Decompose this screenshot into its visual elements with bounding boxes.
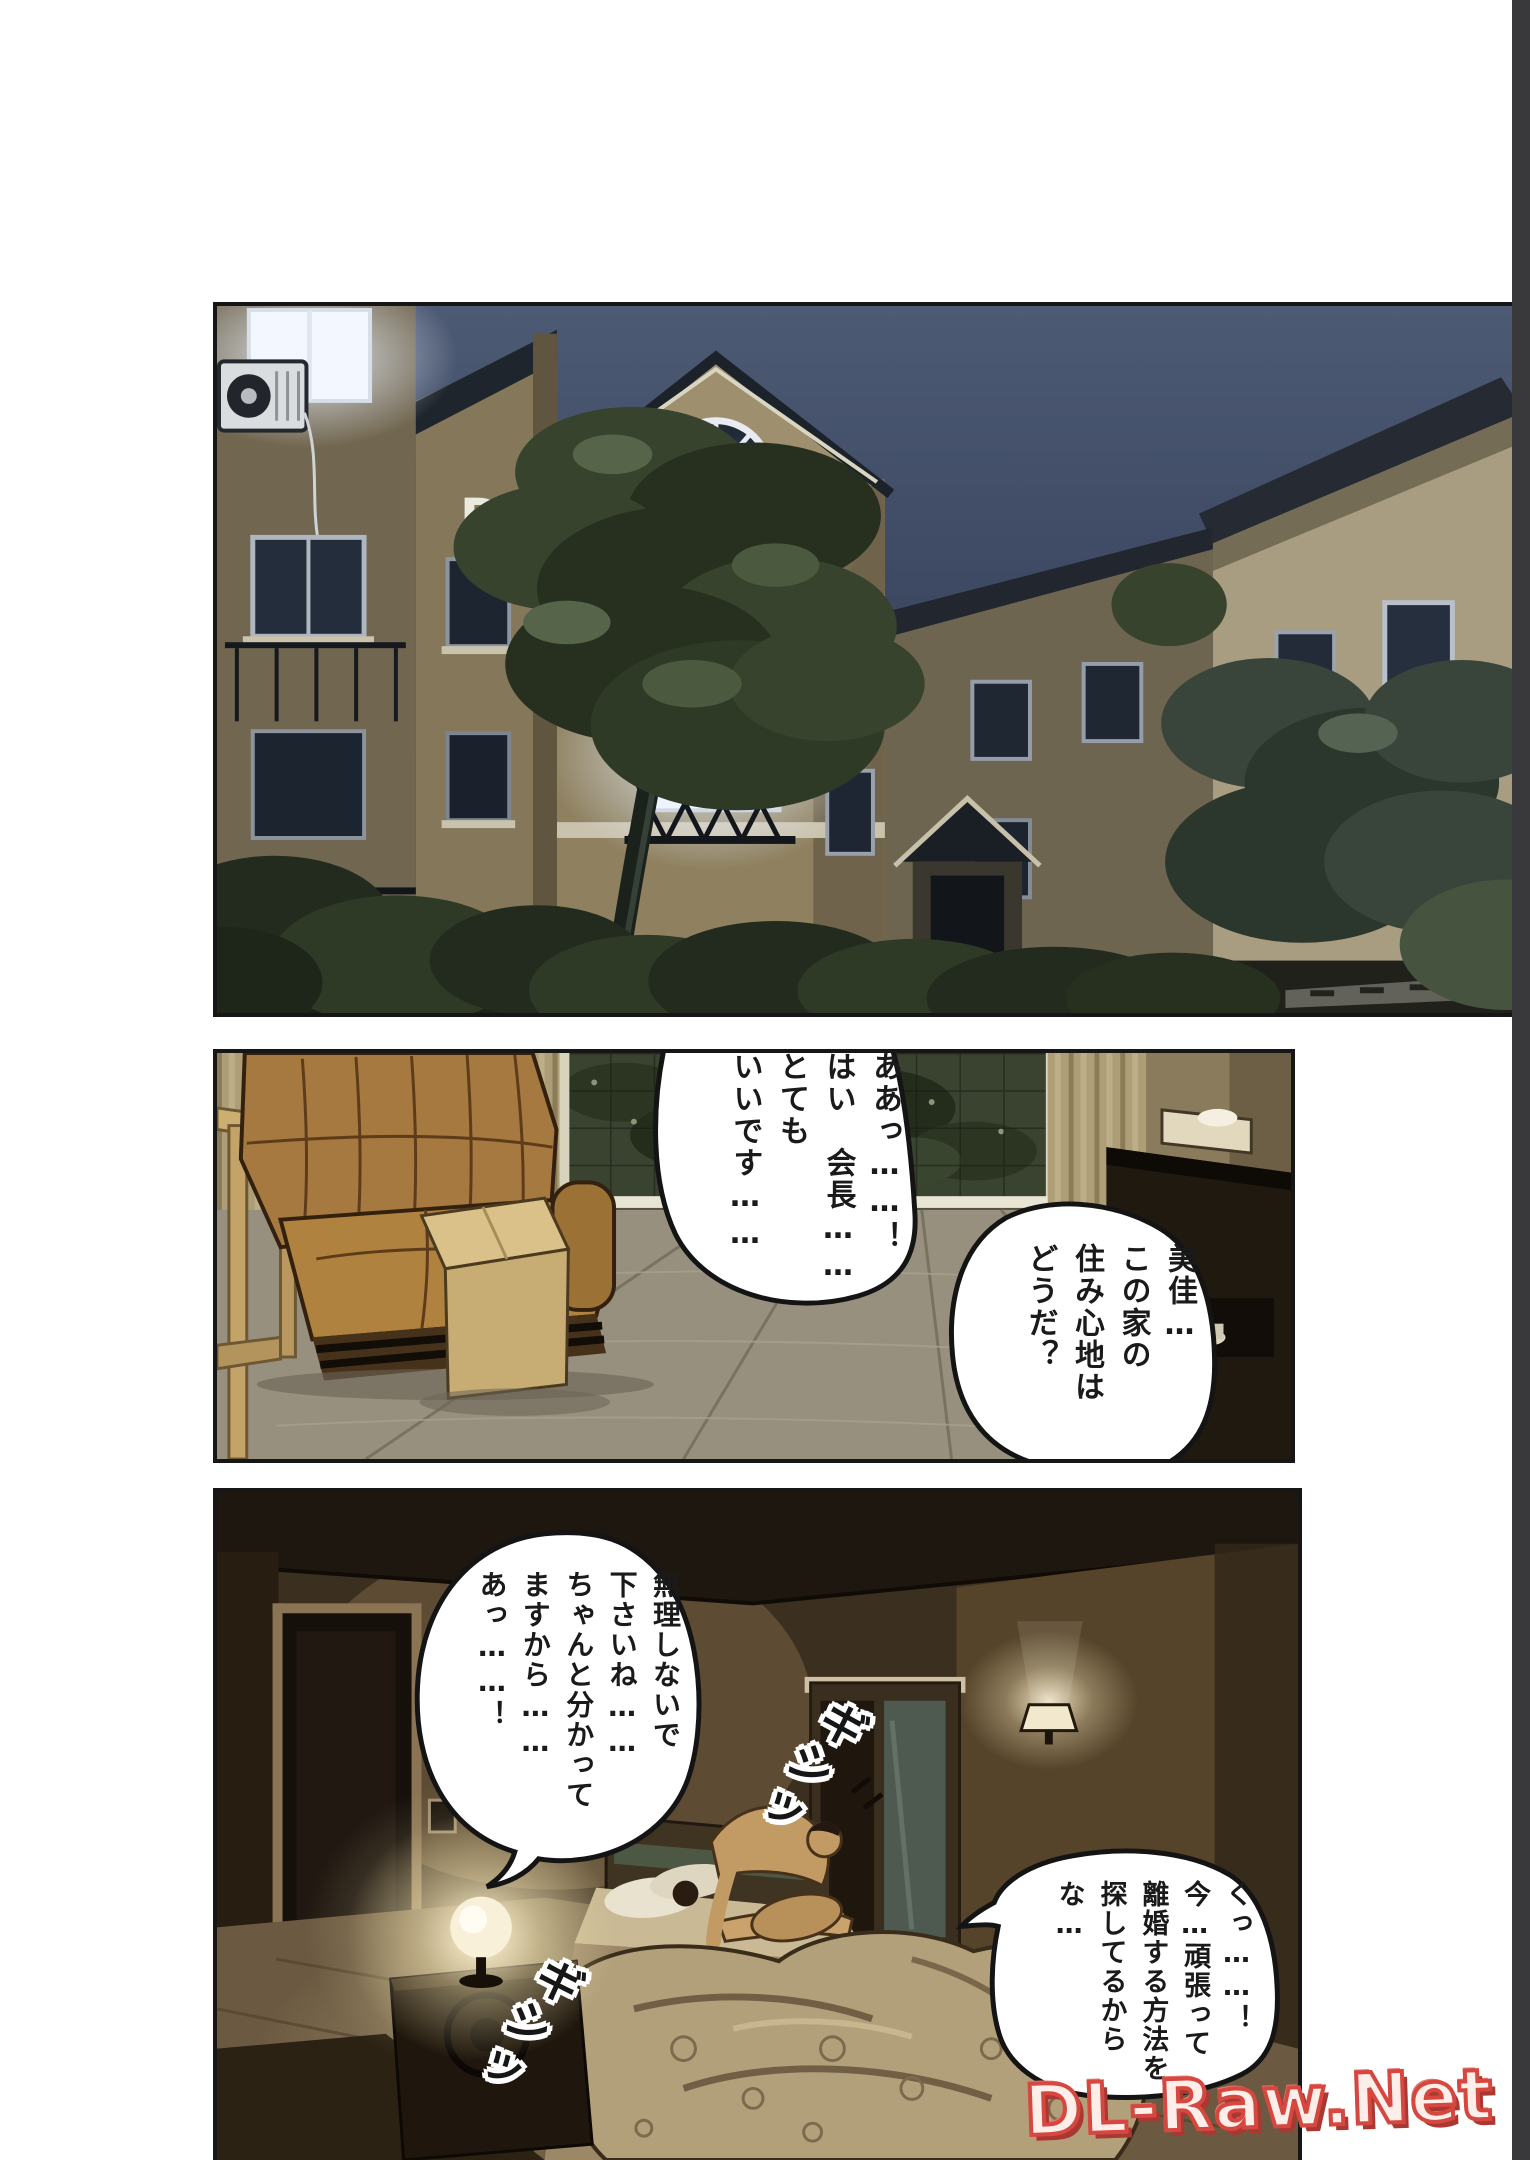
panel-living-room: ああっ……！ はい 会長…… とても いいです…… 美佳… この家の 住み心地は… bbox=[213, 1049, 1295, 1463]
speech-bubble-bottom-text: くっ……！ 今…頑張って 離婚する方法を 探してるから な… bbox=[1048, 1880, 1257, 2090]
watermark-label: DL-Raw.Net bbox=[1023, 2054, 1495, 2152]
manga-page: D bbox=[0, 0, 1530, 2160]
wall-sconce bbox=[1021, 1705, 1077, 1731]
panel-bedroom-night: 無理しないで 下さいね…… ちゃんと分かって ますから…… あっ……！ くっ……… bbox=[213, 1488, 1302, 2160]
speech-bubble-right-text: 美佳… この家の 住み心地は どうだ？ bbox=[1016, 1243, 1202, 1458]
speech-bubble-left-text: ああっ……！ はい 会長…… とても いいです…… bbox=[721, 1051, 907, 1311]
viewer-edge-strip bbox=[1512, 0, 1530, 2160]
panel-exterior-night: D bbox=[213, 302, 1517, 1017]
speech-bubble-top-text: 無理しないで 下さいね…… ちゃんと分かって ますから…… あっ……！ bbox=[470, 1570, 687, 1840]
exterior-night-art: D bbox=[217, 306, 1513, 1013]
